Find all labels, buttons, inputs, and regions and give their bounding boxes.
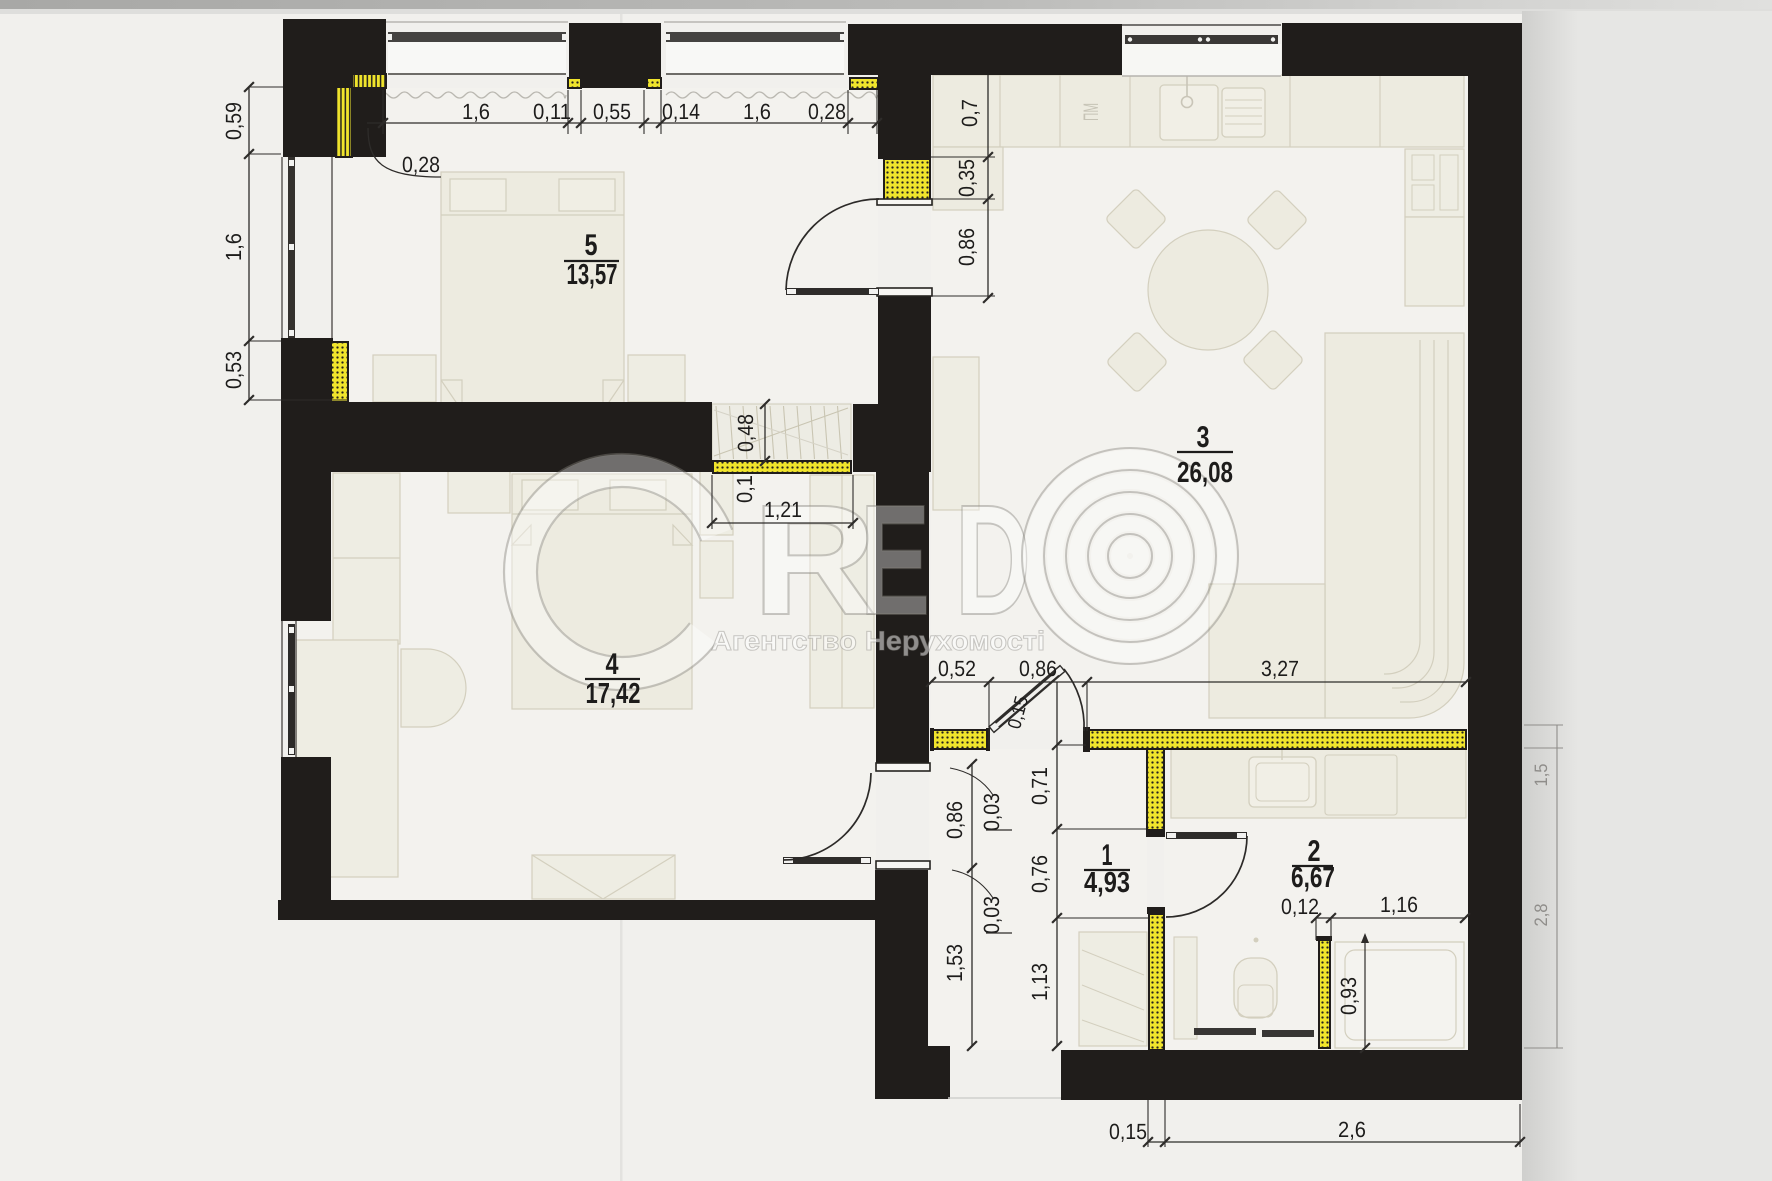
svg-text:1,21: 1,21 — [764, 497, 802, 522]
svg-text:5: 5 — [585, 229, 598, 262]
svg-text:1,16: 1,16 — [1380, 892, 1418, 917]
svg-text:0,03: 0,03 — [979, 896, 1004, 934]
svg-text:0,11: 0,11 — [533, 99, 571, 124]
svg-text:1,6: 1,6 — [743, 99, 771, 124]
svg-text:3: 3 — [1197, 421, 1210, 454]
svg-text:1,5: 1,5 — [1531, 764, 1551, 787]
svg-text:3,27: 3,27 — [1261, 656, 1299, 681]
svg-text:0,71: 0,71 — [1027, 767, 1052, 805]
svg-text:1,6: 1,6 — [462, 99, 490, 124]
svg-text:0,76: 0,76 — [1027, 855, 1052, 893]
svg-text:D: D — [955, 473, 1031, 648]
svg-text:0,15: 0,15 — [1109, 1119, 1147, 1144]
svg-text:1,13: 1,13 — [1027, 963, 1052, 1001]
svg-text:0,86: 0,86 — [1019, 656, 1057, 681]
svg-text:0,14: 0,14 — [662, 99, 700, 124]
svg-text:13,57: 13,57 — [567, 259, 618, 291]
svg-text:0,59: 0,59 — [221, 102, 246, 140]
svg-text:0,48: 0,48 — [733, 414, 758, 452]
svg-text:0,28: 0,28 — [808, 99, 846, 124]
svg-text:2,6: 2,6 — [1338, 1117, 1366, 1142]
svg-text:4,93: 4,93 — [1084, 867, 1130, 899]
svg-text:E: E — [860, 473, 930, 648]
svg-text:0,35: 0,35 — [954, 159, 979, 197]
svg-text:0,1: 0,1 — [732, 475, 757, 503]
svg-text:0,86: 0,86 — [954, 228, 979, 266]
svg-text:0,53: 0,53 — [221, 351, 246, 389]
svg-text:0,7: 0,7 — [957, 99, 982, 127]
svg-text:0,12: 0,12 — [1281, 894, 1319, 919]
svg-text:0,55: 0,55 — [593, 99, 631, 124]
svg-text:0,03: 0,03 — [979, 793, 1004, 831]
svg-text:6,67: 6,67 — [1291, 862, 1335, 894]
svg-text:2,8: 2,8 — [1531, 904, 1551, 927]
svg-text:4: 4 — [606, 648, 619, 681]
svg-text:0,52: 0,52 — [938, 656, 976, 681]
svg-text:0,28: 0,28 — [402, 152, 440, 177]
svg-text:0,93: 0,93 — [1336, 977, 1361, 1015]
svg-text:Агентство Нерухомості: Агентство Нерухомості — [711, 626, 1045, 656]
svg-text:26,08: 26,08 — [1177, 457, 1233, 489]
svg-text:1,6: 1,6 — [221, 233, 246, 261]
svg-text:17,42: 17,42 — [586, 678, 641, 710]
svg-text:0,86: 0,86 — [942, 801, 967, 839]
svg-text:ПМ: ПМ — [1080, 103, 1103, 121]
svg-text:1,53: 1,53 — [942, 944, 967, 982]
